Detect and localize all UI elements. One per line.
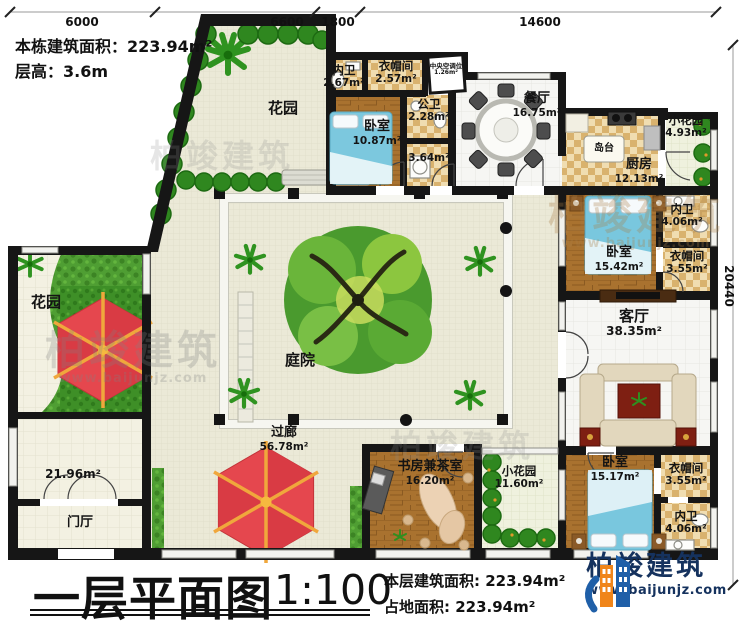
room-label-neiwei3: 内卫4.06m²	[665, 510, 706, 535]
room-label-corridor: 过廊56.78m²	[260, 426, 309, 453]
company-logo: 柏竣建筑 www.baijunjz.com	[580, 551, 727, 598]
dim-top-14600: 14600	[519, 15, 561, 29]
room-label-laundry: 3.64m²	[408, 152, 449, 164]
plan-scale: 1:100	[274, 566, 392, 614]
room-label-courtyard: 庭院	[285, 352, 315, 369]
company-logo-icon	[580, 551, 636, 615]
room-label-island: 岛台	[594, 143, 614, 155]
room-label-foyer: 门厅	[67, 516, 93, 531]
room-label-bedroom3: 卧室15.17m²	[591, 456, 640, 483]
room-label-garden-top: 花园	[268, 100, 298, 117]
room-label-neiwei1: 内卫2.67m²	[323, 64, 364, 89]
title-underline	[30, 609, 370, 616]
room-label-kitchen: 厨房12.13m²	[615, 158, 664, 185]
land-area-label: 占地面积: 223.94m²	[384, 596, 535, 617]
room-label-bedroom2: 卧室15.42m²	[595, 246, 644, 273]
room-label-yimaojian1: 衣帽间2.57m²	[375, 60, 416, 85]
room-label-living: 客厅38.35m²	[606, 308, 662, 339]
room-label-small-garden2: 小花园11.60m²	[495, 465, 544, 490]
building-area-note: 本栋建筑面积：223.94m²	[15, 33, 212, 57]
dim-top-6600: 6600	[270, 15, 303, 29]
floor-area-label: 本层建筑面积: 223.94m²	[384, 570, 565, 591]
room-label-yimaojian3: 衣帽间3.55m²	[665, 462, 706, 487]
floor-plan-page: 柏竣建筑 柏竣建筑 www.baijunjz.com 柏竣建筑 www.baij…	[0, 0, 750, 623]
floor-height-note: 层高：3.6m	[15, 58, 108, 82]
room-label-small-garden1: 小花园4.93m²	[665, 114, 706, 139]
room-label-garden-left: 花园	[31, 294, 61, 311]
room-label-bedroom1: 卧室10.87m²	[353, 120, 402, 147]
room-label-study: 书房兼茶室16.20m²	[397, 460, 462, 487]
dim-right-20440: 20440	[722, 265, 736, 307]
room-label-neiwei2: 内卫4.06m²	[661, 203, 702, 228]
room-label-central-ac: 中央空调位1.26m²	[430, 63, 463, 77]
dim-top-1800: 1800	[321, 15, 354, 29]
room-label-yimaojian2: 衣帽间3.55m²	[666, 250, 707, 275]
room-label-hall-area: 21.96m²	[45, 468, 101, 482]
room-label-gongwei: 公卫2.28m²	[408, 98, 449, 123]
room-label-dining: 餐厅16.75m²	[513, 92, 562, 119]
dim-top-6000: 6000	[65, 15, 98, 29]
